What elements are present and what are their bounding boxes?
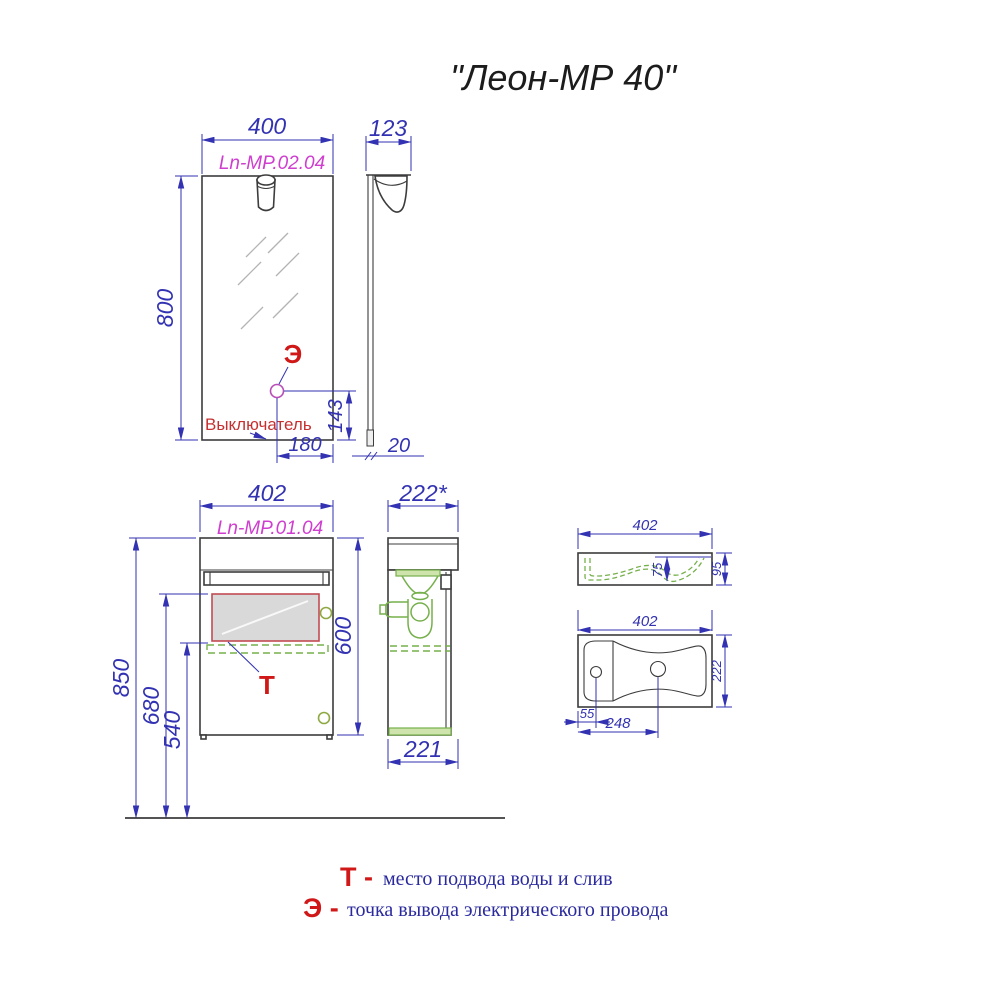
- cabinet-code-label: Ln-MP.01.04: [217, 518, 323, 539]
- legend-e-symbol: Э -: [303, 893, 339, 923]
- dim-text-402: 402: [248, 480, 287, 506]
- dim-text-20: 20: [387, 435, 410, 457]
- dim-text-basin-top-402: 402: [632, 613, 658, 630]
- door-knob-circle: [319, 713, 330, 724]
- water-supply-zone: [212, 594, 319, 641]
- dim-text-75: 75: [650, 562, 665, 577]
- technical-drawing-page: "Леон-МР 40" 400 Ln-MP.02.04: [0, 0, 1000, 1000]
- legend-t-text: место подвода воды и слив: [383, 868, 613, 890]
- drawing-canvas: "Леон-МР 40" 400 Ln-MP.02.04: [0, 0, 1000, 1000]
- dim-text-143: 143: [325, 399, 347, 432]
- dim-text-222star: 222*: [398, 480, 447, 506]
- dim-text-540: 540: [159, 711, 185, 750]
- mirror-code-label: Ln-MP.02.04: [219, 153, 325, 174]
- dim-text-95: 95: [709, 561, 724, 576]
- dim-text-400: 400: [248, 113, 287, 139]
- cabinet-foot-right: [327, 735, 332, 739]
- cabinet-foot-left: [201, 735, 206, 739]
- mirror-lamp-icon: [257, 175, 275, 211]
- dim-text-180: 180: [288, 434, 321, 456]
- switch-label: Выключатель: [205, 415, 312, 434]
- dim-text-221: 221: [403, 736, 442, 762]
- dim-text-basin-402: 402: [632, 517, 658, 534]
- dim-text-55: 55: [580, 706, 595, 721]
- dim-text-800: 800: [152, 289, 178, 328]
- dim-text-123: 123: [369, 115, 408, 141]
- electric-symbol: Э: [284, 339, 303, 369]
- background: [0, 0, 1000, 1000]
- dim-text-850: 850: [108, 659, 134, 698]
- legend-e-text: точка вывода электрического провода: [347, 899, 669, 921]
- dim-text-222: 222: [709, 659, 724, 682]
- mirror-panel-foot: [367, 430, 374, 446]
- bottom-panel-strip: [389, 728, 451, 735]
- dim-text-600: 600: [330, 617, 356, 656]
- water-symbol: Т: [259, 670, 275, 700]
- wall-rail: [441, 575, 451, 589]
- dim-text-248: 248: [604, 715, 631, 732]
- drawing-title: "Леон-МР 40": [450, 57, 678, 98]
- legend-t-symbol: Т -: [340, 862, 373, 892]
